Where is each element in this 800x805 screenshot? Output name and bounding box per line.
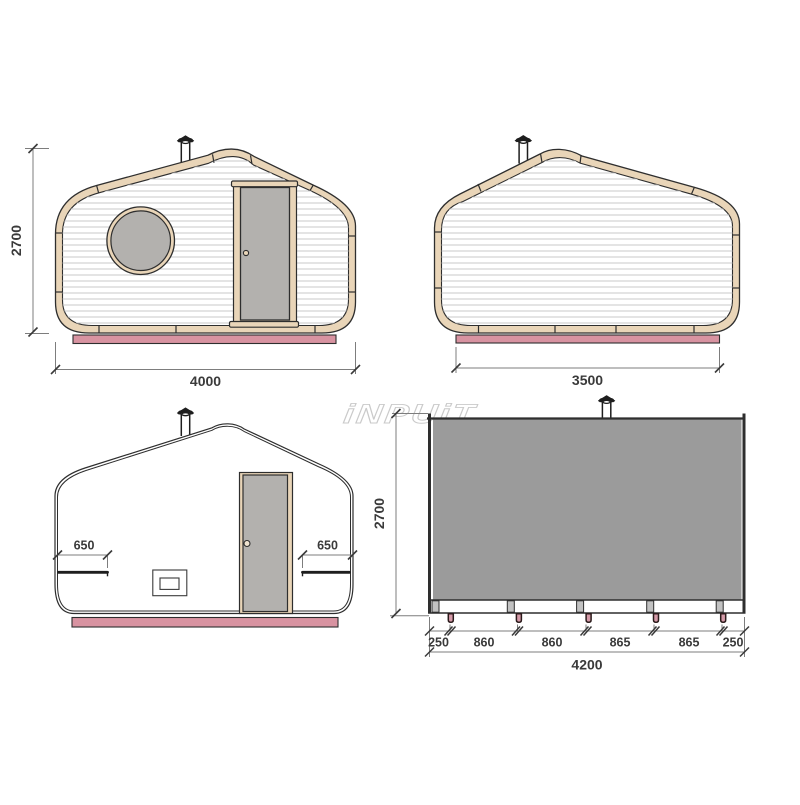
svg-text:3500: 3500 xyxy=(572,372,603,388)
svg-text:250: 250 xyxy=(428,636,449,650)
svg-text:4200: 4200 xyxy=(571,657,602,673)
svg-text:865: 865 xyxy=(679,636,700,650)
svg-text:250: 250 xyxy=(723,636,744,650)
svg-text:650: 650 xyxy=(74,539,95,553)
svg-text:2700: 2700 xyxy=(371,498,387,529)
svg-text:860: 860 xyxy=(542,636,563,650)
svg-text:4000: 4000 xyxy=(190,373,221,389)
svg-text:865: 865 xyxy=(610,636,631,650)
svg-text:650: 650 xyxy=(317,539,338,553)
svg-text:2700: 2700 xyxy=(8,225,24,256)
svg-text:860: 860 xyxy=(474,636,495,650)
